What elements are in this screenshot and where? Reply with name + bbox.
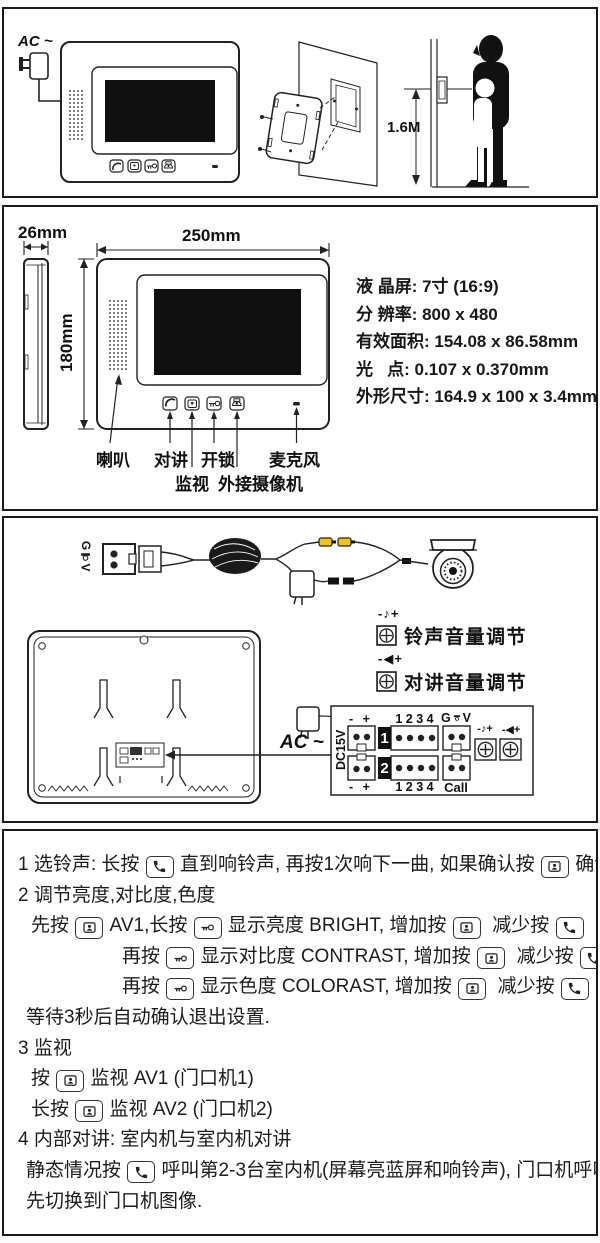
monitor-front-drawing <box>61 42 239 182</box>
ac-power-label: AC ~ <box>280 732 324 754</box>
depth-dimension-label: 26mm <box>18 223 67 243</box>
instruction-line: 静态情况按 呼叫第2-3台室内机(屏幕亮蓝屏和响铃声), 门口机呼叫会优 <box>4 1156 598 1187</box>
monitor-side-drawing <box>24 259 48 429</box>
monitor-icon <box>82 920 97 935</box>
g-label: G <box>441 711 451 725</box>
instruction-line: 长按 监视 AV2 (门口机2) <box>4 1095 598 1126</box>
instruction-text: 再按 <box>122 976 165 997</box>
phone-icon <box>586 951 598 966</box>
monitor-icon <box>63 1073 78 1088</box>
monitor-front-drawing <box>97 259 329 429</box>
instruction-text: 4 内部对讲: 室内机与室内机对讲 <box>18 1129 291 1150</box>
width-dimension-label: 250mm <box>182 226 241 246</box>
instruction-text: 监视 AV2 (门口机2) <box>104 1099 273 1120</box>
instruction-text: 等待3秒后自动确认退出设置. <box>26 1007 270 1028</box>
key-button-icon <box>166 947 194 969</box>
talk-volume-pot-icon <box>500 739 521 760</box>
spec-active-area: 有效面积: 154.08 x 86.58mm <box>356 328 597 356</box>
key-icon <box>173 951 188 966</box>
monitor-icon <box>484 951 499 966</box>
mount-height-label: 1.6M <box>387 119 420 136</box>
row2-polarity-label: - + <box>345 780 377 794</box>
instruction-text: 减少按 <box>482 915 555 936</box>
instruction-text: 监视 AV1 (门口机1) <box>85 1068 254 1089</box>
instruction-line: 3 监视 <box>4 1034 598 1065</box>
talk-volume-symbol: -◀+ <box>496 723 526 736</box>
key-icon <box>200 920 215 935</box>
key-icon <box>173 981 188 996</box>
installation-overview-drawing <box>4 9 596 196</box>
potentiometer-icon <box>376 671 397 692</box>
panel-instructions: 1 选铃声: 长按 直到响铃声, 再按1次响下一曲, 如果确认按 确认退出.2 … <box>2 829 598 1236</box>
talk-volume-adjust: -◀+ 对讲音量调节 <box>376 651 527 695</box>
row1-pins-label: 1 2 3 4 <box>391 712 438 726</box>
gv-connector-label: G V <box>80 540 91 573</box>
instruction-line: 先切换到门口机图像. <box>4 1187 598 1218</box>
instruction-text: 显示亮度 BRIGHT, 增加按 <box>223 915 452 936</box>
camera-icon <box>453 714 461 722</box>
dome-camera-drawing <box>429 540 477 588</box>
instruction-text: 再按 <box>122 946 165 967</box>
instruction-text: 先切换到门口机图像. <box>26 1191 202 1212</box>
phone-icon <box>567 981 582 996</box>
row1-polarity-label: - + <box>345 712 377 726</box>
instruction-line: 先按 AV1,长按 显示亮度 BRIGHT, 增加按 减少按 <box>4 911 598 942</box>
mic-label: 麦克风 <box>269 446 320 471</box>
panel-installation-overview: AC ~ 1.6M <box>2 7 598 198</box>
instruction-line: 4 内部对讲: 室内机与室内机对讲 <box>4 1125 598 1156</box>
ac-adapter-drawing <box>19 53 61 101</box>
row2-pins-label: 1 2 3 4 <box>391 780 438 794</box>
ring-volume-symbol: -♪+ <box>378 606 527 621</box>
instruction-text: 呼叫第2-3台室内机(屏幕亮蓝屏和响铃声), 门口机呼叫会优 <box>156 1160 598 1181</box>
instruction-text: 长按 <box>31 1099 74 1120</box>
ring-volume-label: 铃声音量调节 <box>404 622 527 649</box>
phone-icon <box>152 859 167 874</box>
key-button-icon <box>166 978 194 1000</box>
camera-cable-drawing <box>103 538 428 605</box>
ext-camera-label: 外接摄像机 <box>218 470 303 495</box>
instruction-text: 按 <box>31 1068 55 1089</box>
phone-button-icon <box>580 947 598 969</box>
spec-list: 液 晶屏: 7寸 (16:9) 分 辨率: 800 x 480 有效面积: 15… <box>356 273 597 411</box>
g-label: G <box>80 541 91 550</box>
instruction-text: 2 调节亮度,对比度,色度 <box>18 885 215 906</box>
phone-button-icon <box>146 856 174 878</box>
spec-outline-size: 外形尺寸: 164.9 x 100 x 3.4mm <box>356 383 597 411</box>
phone-button-icon <box>561 978 589 1000</box>
instruction-text: 显示对比度 CONTRAST, 增加按 <box>195 946 476 967</box>
monitor-icon <box>459 920 474 935</box>
gv-terminal-label: G V <box>441 711 471 725</box>
ac-power-label: AC ~ <box>18 33 53 50</box>
talk-volume-label: 对讲音量调节 <box>404 668 527 695</box>
instructions-list: 1 选铃声: 长按 直到响铃声, 再按1次响下一曲, 如果确认按 确认退出.2 … <box>4 831 598 1217</box>
monitor-button-icon <box>477 947 505 969</box>
instruction-line: 按 监视 AV1 (门口机1) <box>4 1064 598 1095</box>
camera-icon <box>80 552 91 561</box>
monitor-button-icon <box>56 1070 84 1092</box>
phone-button-icon <box>556 917 584 939</box>
panel-wiring: G V -♪+ 铃声音量调节 -◀+ 对讲音量调节 <box>2 516 598 823</box>
monitor-icon <box>465 981 480 996</box>
wall-bracket-drawing <box>258 42 377 186</box>
door-station-1-chip: 1 <box>378 727 391 749</box>
v-label: V <box>80 563 91 571</box>
panel-dimensions-specs: 26mm 250mm 180mm 液 晶屏: 7寸 (16:9) 分 辨率: 8… <box>2 205 598 511</box>
ring-volume-adjust: -♪+ 铃声音量调节 <box>376 606 527 649</box>
instruction-text: 直到响铃声, 再按1次响下一曲, 如果确认按 <box>175 854 540 875</box>
spec-dot-pitch: 光 点: 0.107 x 0.370mm <box>356 356 597 384</box>
instruction-line: 1 选铃声: 长按 直到响铃声, 再按1次响下一曲, 如果确认按 确认退出. <box>4 850 598 881</box>
dc15v-label: DC15V <box>334 730 348 770</box>
monitor-icon <box>82 1104 97 1119</box>
phone-button-icon <box>127 1161 155 1183</box>
spec-resolution: 分 辨率: 800 x 480 <box>356 301 597 329</box>
monitor-button-icon <box>458 978 486 1000</box>
instruction-text: AV1,长按 <box>104 915 192 936</box>
phone-icon <box>562 920 577 935</box>
monitor-button-icon <box>75 917 103 939</box>
unlock-label: 开锁 <box>201 446 235 471</box>
monitor-button-icon <box>541 856 569 878</box>
instruction-line: 再按 显示对比度 CONTRAST, 增加按 减少按 <box>4 942 598 973</box>
monitor-back-drawing <box>28 631 260 803</box>
phone-icon <box>134 1165 149 1180</box>
mounting-height-drawing <box>404 39 529 187</box>
instruction-line: 等待3秒后自动确认退出设置. <box>4 1003 598 1034</box>
ring-volume-pot-icon <box>475 739 496 760</box>
instruction-text: 1 选铃声: 长按 <box>18 854 145 875</box>
instruction-text: 确认退出. <box>570 854 598 875</box>
speaker-label: 喇叭 <box>96 446 130 471</box>
monitor-button-icon <box>75 1100 103 1122</box>
key-button-icon <box>194 917 222 939</box>
person-silhouette <box>465 35 509 187</box>
instruction-text: 减少按 <box>506 946 579 967</box>
call-terminal-label: Call <box>441 780 471 795</box>
monitor-icon <box>547 859 562 874</box>
instruction-text: 减少按 <box>487 976 560 997</box>
instruction-text: 显示色度 COLORAST, 增加按 <box>195 976 457 997</box>
monitor-label: 监视 <box>175 470 209 495</box>
instruction-text: 静态情况按 <box>26 1160 126 1181</box>
spec-lcd: 液 晶屏: 7寸 (16:9) <box>356 273 597 301</box>
talk-volume-symbol: -◀+ <box>378 651 527 667</box>
height-dimension-label: 180mm <box>57 313 77 372</box>
instruction-line: 再按 显示色度 COLORAST, 增加按 减少按 <box>4 972 598 1003</box>
instruction-line: 2 调节亮度,对比度,色度 <box>4 881 598 912</box>
door-station-2-chip: 2 <box>378 757 391 779</box>
potentiometer-icon <box>376 625 397 646</box>
instruction-text: 先按 <box>31 915 74 936</box>
instruction-text: 3 监视 <box>18 1038 72 1059</box>
monitor-button-icon <box>453 917 481 939</box>
talk-label: 对讲 <box>154 446 188 471</box>
